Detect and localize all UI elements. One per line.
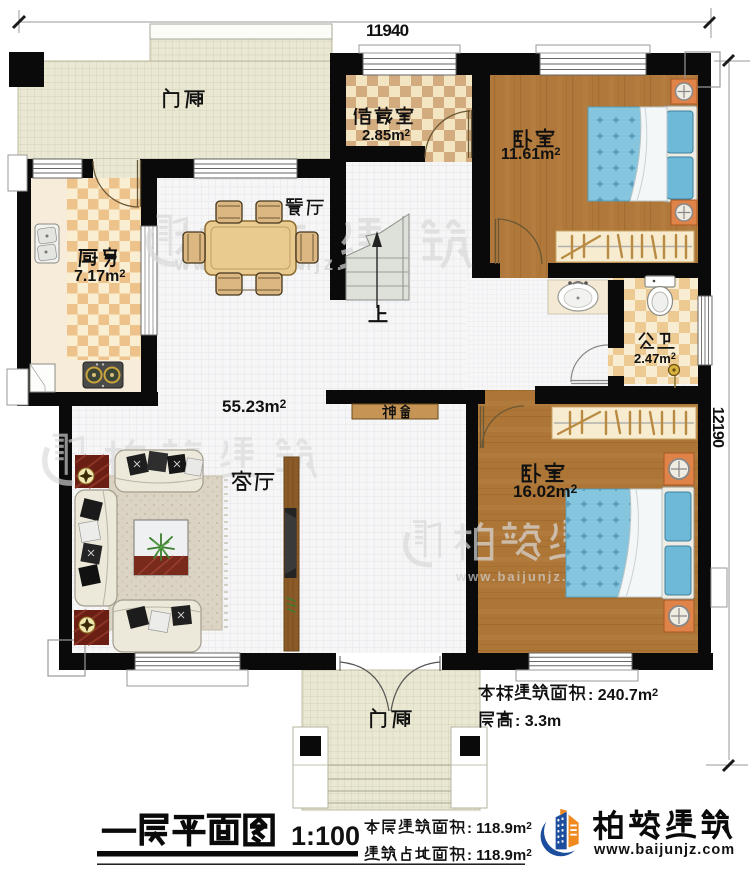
svg-text:16.02m2: 16.02m2 — [513, 482, 578, 501]
svg-text:1:100: 1:100 — [291, 821, 360, 851]
svg-text:www.baijunjz.com: www.baijunjz.com — [593, 842, 735, 858]
svg-text:: 118.9m2: : 118.9m2 — [467, 820, 532, 837]
svg-text:11.61m2: 11.61m2 — [501, 146, 561, 163]
svg-text:7.17m2: 7.17m2 — [74, 268, 126, 285]
svg-text:: 3.3m: : 3.3m — [515, 713, 561, 730]
svg-text:: 240.7m2: : 240.7m2 — [588, 687, 658, 704]
svg-text:: 118.9m2: : 118.9m2 — [467, 847, 532, 864]
svg-text:11940: 11940 — [366, 21, 409, 40]
svg-text:55.23m2: 55.23m2 — [222, 397, 287, 416]
svg-text:2.47m2: 2.47m2 — [634, 351, 676, 366]
svg-text:12190: 12190 — [709, 407, 726, 448]
svg-text:2.85m2: 2.85m2 — [362, 127, 411, 144]
